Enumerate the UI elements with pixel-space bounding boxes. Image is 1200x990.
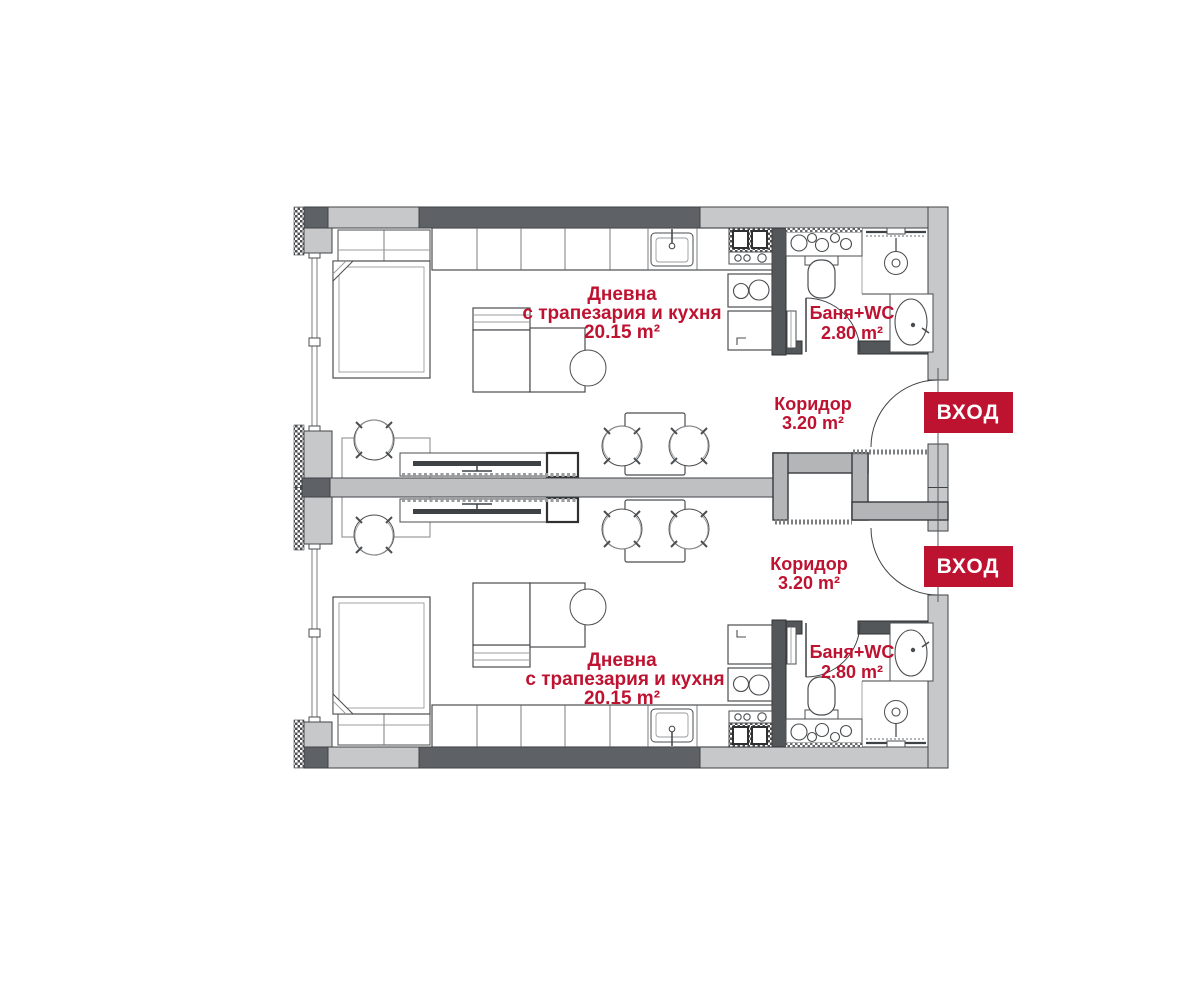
living-room-area: 20.15 m² bbox=[584, 688, 660, 709]
entrance-badge-label: ВХОД bbox=[937, 401, 1000, 424]
corridor-label: Коридор bbox=[770, 554, 847, 574]
living-room-area: 20.15 m² bbox=[584, 322, 660, 343]
party-wall bbox=[302, 478, 773, 497]
floor-plan-canvas: ВХОД ВХОД Дневна с трапезария и кухня 20… bbox=[0, 0, 1200, 990]
bathroom-area: 2.80 m² bbox=[821, 662, 883, 682]
living-room-label-line2: с трапезария и кухня bbox=[522, 303, 721, 324]
living-room-label-line2: с трапезария и кухня bbox=[525, 669, 724, 690]
corridor-label: Коридор bbox=[774, 394, 851, 414]
living-room-label-line1: Дневна bbox=[587, 284, 657, 305]
floor-plan: ВХОД ВХОД Дневна с трапезария и кухня 20… bbox=[0, 0, 1200, 990]
entrance-badge-label: ВХОД bbox=[937, 555, 1000, 578]
corridor-area: 3.20 m² bbox=[778, 573, 840, 593]
corridor-area: 3.20 m² bbox=[782, 413, 844, 433]
bathroom-area: 2.80 m² bbox=[821, 323, 883, 343]
entrance-badge-top: ВХОД bbox=[924, 392, 1013, 433]
bathroom-label: Баня+WC bbox=[810, 642, 895, 662]
entrance-badge-bottom: ВХОД bbox=[924, 546, 1013, 587]
living-room-label-line1: Дневна bbox=[587, 650, 657, 671]
bathroom-label: Баня+WC bbox=[810, 303, 895, 323]
